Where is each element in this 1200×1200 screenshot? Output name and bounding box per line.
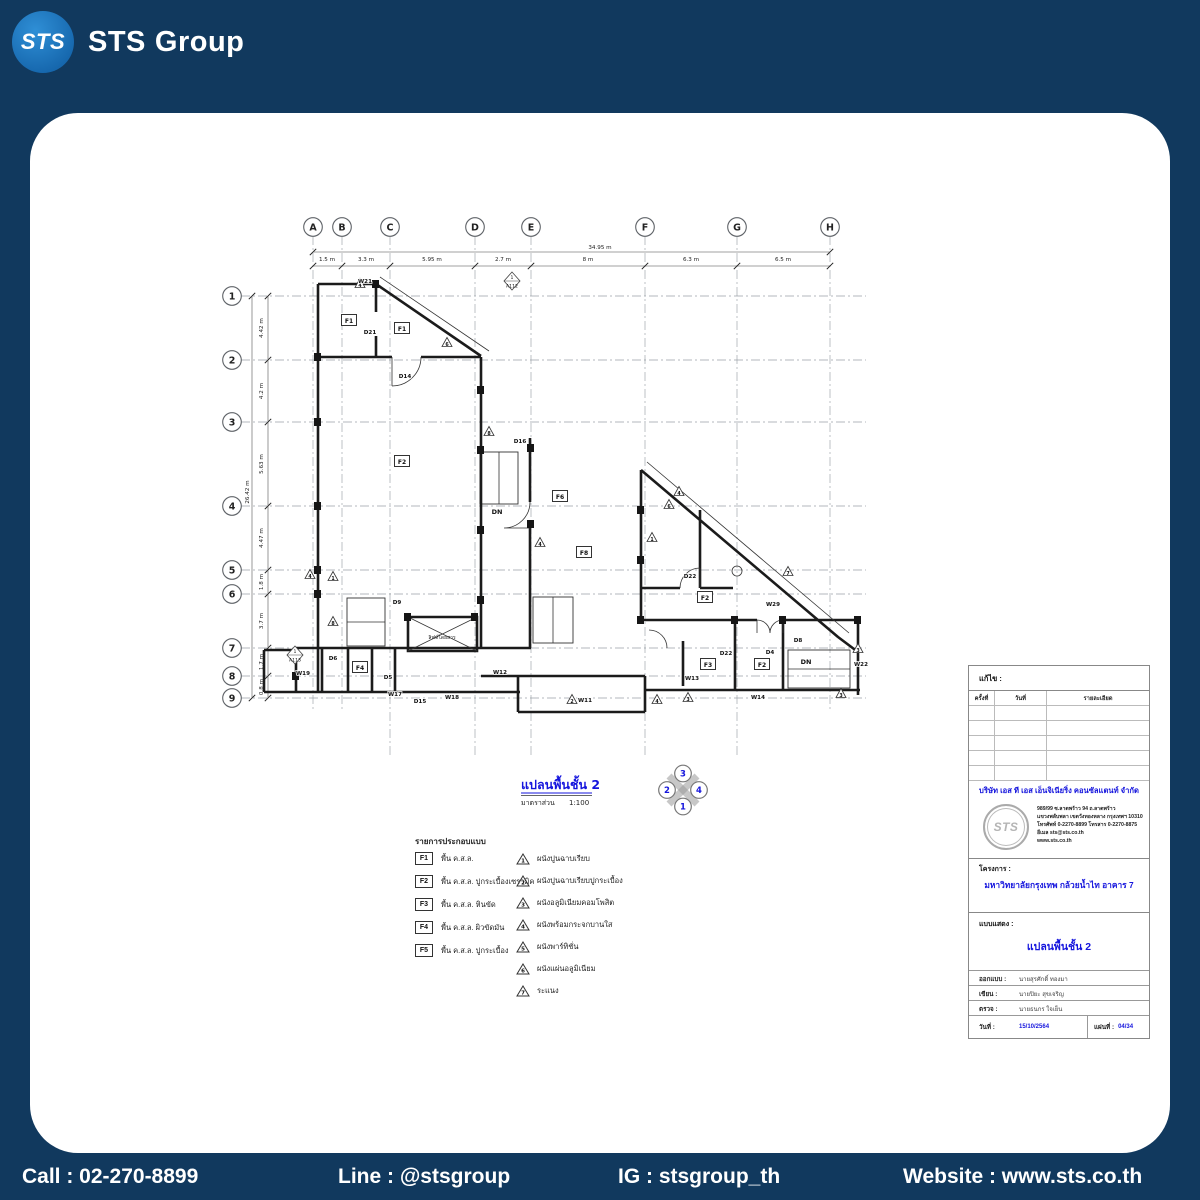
svg-text:2: 2 (521, 880, 525, 886)
plan-title: แปลนพื้นชั้น 2 (521, 775, 600, 792)
legend-wall-item: 6 ผนังแผ่นอลูมิเนียม (516, 962, 596, 975)
plan-scale-label: มาตราส่วน (521, 799, 555, 807)
grid-bubble-label: 4 (229, 501, 236, 512)
door-window-tag: W19 (296, 671, 310, 677)
wall-type-number: 7 (786, 571, 789, 577)
contact-footer: Call : 02-270-8899 Line : @stsgroup IG :… (0, 1153, 1200, 1200)
project-label: โครงการ : (979, 864, 1011, 875)
floor-code-badge: F2 (415, 875, 433, 888)
grid-bubble-label: F (642, 222, 649, 233)
north-top: 3 (680, 770, 686, 780)
svg-text:5: 5 (521, 946, 525, 952)
door-window-tag: DN (801, 658, 812, 666)
dim-label: 1.8 m (259, 574, 265, 590)
north-right: 4 (696, 786, 702, 796)
project-name: มหาวิทยาลัยกรุงเทพ กล้วยน้ำไท อาคาร 7 (973, 878, 1145, 892)
drawing-label: แบบแสดง : (979, 919, 1013, 930)
door-window-tag: D14 (399, 374, 412, 380)
wall-type-number: 2 (570, 699, 573, 705)
grid-bubble-label: G (733, 222, 741, 233)
triangle-marker-icon: 5 (516, 941, 530, 953)
grid-bubble-label: 9 (229, 693, 236, 704)
dim-label: 5.63 m (259, 454, 265, 474)
north-bottom: 1 (680, 803, 686, 813)
door-window-tag: D4 (766, 650, 775, 656)
floor-code-badge: F4 (415, 921, 433, 934)
floor-code-label: F2 (701, 595, 709, 602)
grid-bubble-label: H (826, 222, 834, 233)
legend-title: รายการประกอบแบบ (415, 835, 486, 848)
door-window-tag: W22 (854, 662, 868, 668)
grid-bubble-label: A (309, 222, 317, 233)
door-window-tag: D15 (414, 699, 427, 705)
floor-code-badge: F3 (415, 898, 433, 911)
legend-wall-item: 4 ผนังพร้อมกระจกบานใส (516, 918, 612, 931)
grid-bubble-label: 2 (229, 355, 236, 366)
company-name: บริษัท เอส ที เอส เอ็นจิเนียริ่ง คอนซัลแ… (973, 785, 1145, 797)
floor-code-label: F8 (580, 550, 588, 557)
sheet-cell: แผ่นที่ : 04/34 (1087, 1016, 1149, 1038)
revision-table: ครั้งที่ วันที่ รายละเอียด (969, 690, 1149, 781)
drawing-name: แปลนพื้นชั้น 2 (973, 938, 1145, 955)
plan-title-group: แปลนพื้นชั้น 2 มาตราส่วน 1:100 (521, 775, 600, 807)
door-window-tag: W21 (358, 279, 372, 285)
sts-stamp-icon: STS (983, 804, 1029, 850)
door-window-tag: D6 (329, 656, 338, 662)
legend-floor-item: F3 พื้น ค.ส.ล. หินขัด (415, 898, 496, 911)
door-window-tag: W17 (388, 692, 402, 698)
triangle-marker-icon: 6 (516, 963, 530, 975)
door-window-tag: D9 (393, 600, 402, 606)
door-window-tag: W29 (766, 602, 780, 608)
annotation-layer: 1A1121A1134614841647333842W21D21F1F1D14F… (287, 272, 868, 705)
dim-label: 3.3 m (358, 257, 374, 263)
wall-type-number: 1 (331, 576, 334, 582)
door-window-tag: W14 (751, 695, 765, 701)
dimension-lines (252, 252, 830, 698)
revision-label: แก้ไข : (979, 673, 1002, 685)
wall-type-number: 3 (856, 648, 859, 654)
dim-label: 1.5 m (319, 257, 335, 263)
sts-logo-text: STS (21, 29, 65, 55)
triangle-marker-icon: 1 (516, 853, 530, 865)
door-window-tag: W18 (445, 695, 459, 701)
grid-bubble-label: E (528, 222, 535, 233)
contact-website: Website : www.sts.co.th (903, 1165, 1142, 1189)
svg-text:1: 1 (521, 858, 525, 864)
title-block: แก้ไข : ครั้งที่ วันที่ รายละเอียด บริษั… (968, 665, 1150, 1039)
floor-code-label: F1 (345, 318, 353, 325)
door-window-tag: W11 (578, 698, 592, 704)
grid-bubble-label: 6 (229, 589, 236, 600)
sheet-value: 04/34 (1118, 1024, 1133, 1030)
contact-instagram: IG : stsgroup_th (618, 1165, 780, 1189)
room-label: ลิฟท์โดยสาร (428, 634, 456, 641)
legend-floor-item: F1 พื้น ค.ส.ล. (415, 852, 474, 865)
north-symbol: 3 2 4 1 (659, 765, 708, 815)
dim-label: 3.7 m (259, 613, 265, 629)
dim-label: 4.2 m (259, 383, 265, 399)
dim-label: 4.42 m (259, 318, 265, 338)
company-address: 989/99 ซ.ลาดพร้าว 94 ถ.ลาดพร้าว แขวงพลับ… (1037, 805, 1144, 845)
legend-wall-item: 1 ผนังปูนฉาบเรียบ (516, 852, 590, 865)
dim-total-label: 26.42 m (245, 480, 251, 503)
door-window-tag: D21 (364, 330, 377, 336)
sts-logo-icon: STS (12, 11, 74, 73)
drawing-card: ABCDEFGH1234567891.5 m3.3 m5.95 m2.7 m8 … (30, 113, 1170, 1153)
svg-text:7: 7 (521, 990, 525, 996)
door-window-tag: D16 (514, 439, 527, 445)
titleblock-row: ออกแบบ : นายสุรศักดิ์ ทองมา (969, 970, 1149, 986)
svg-text:6: 6 (521, 968, 525, 974)
grid-bubble-label: C (387, 222, 394, 233)
north-left: 2 (664, 786, 670, 796)
floor-code-label: F2 (398, 459, 406, 466)
door-window-tag: D5 (384, 675, 393, 681)
floor-code-label: F1 (398, 326, 406, 333)
floor-code-label: F2 (758, 662, 766, 669)
legend-wall-item: 5 ผนังพาร์ทิชั่น (516, 940, 579, 953)
floor-code-label: F4 (356, 665, 364, 672)
door-window-tag: W12 (493, 670, 507, 676)
triangle-marker-icon: 7 (516, 985, 530, 997)
dim-label: 6.5 m (775, 257, 791, 263)
wall-type-number: 1 (650, 537, 653, 543)
section-marker-sheet: A112 (506, 284, 518, 290)
grid-bubble-label: 1 (229, 291, 236, 302)
brand-name: STS Group (88, 26, 244, 59)
door-window-tag: W13 (685, 676, 699, 682)
dim-label: 4.47 m (259, 528, 265, 548)
grid-bubble-label: B (338, 222, 345, 233)
titleblock-row: เขียน : นายปิยะ สุขเจริญ (969, 985, 1149, 1001)
legend-wall-item: 2 ผนังปูนฉาบเรียบปูกระเบื้อง (516, 874, 623, 887)
titleblock-date-row: วันที่ : 15/10/2564 แผ่นที่ : 04/34 (969, 1015, 1149, 1038)
wall-type-number: 3 (839, 693, 842, 699)
dim-label: 8 m (583, 257, 594, 263)
floor-code-label: F6 (556, 494, 564, 501)
dim-label: 5.95 m (422, 257, 442, 263)
dim-total-label: 34.95 m (588, 245, 611, 251)
legend-floor-item: F5 พื้น ค.ส.ล. ปูกระเบื้อง (415, 944, 509, 957)
svg-text:3: 3 (521, 902, 525, 908)
grid-bubble-label: 5 (229, 565, 236, 576)
grid-bubble-label: 8 (229, 671, 236, 682)
grid-bubble-label: 3 (229, 417, 236, 428)
contact-line: Line : @stsgroup (338, 1165, 510, 1189)
triangle-marker-icon: 4 (516, 919, 530, 931)
door-window-tag: D8 (794, 638, 803, 644)
door-window-tag: D22 (684, 574, 697, 580)
section-marker-number: 1 (511, 275, 514, 281)
section-marker-sheet: A113 (289, 658, 301, 664)
dim-label: 2.7 m (495, 257, 511, 263)
floor-code-badge: F1 (415, 852, 433, 865)
floor-code-badge: F5 (415, 944, 433, 957)
legend-floor-item: F4 พื้น ค.ส.ล. ผิวขัดมัน (415, 921, 504, 934)
triangle-marker-icon: 3 (516, 897, 530, 909)
svg-text:4: 4 (521, 924, 525, 930)
plan-scale-value: 1:100 (569, 799, 589, 807)
legend-wall-item: 7 ระแนง (516, 984, 559, 997)
contact-call: Call : 02-270-8899 (22, 1165, 198, 1189)
date-value: 15/10/2564 (1019, 1024, 1049, 1030)
brand-header: STS STS Group (12, 10, 244, 74)
grid-bubble-label: D (471, 222, 479, 233)
door-window-tag: DN (492, 508, 503, 516)
door-window-tag: D22 (720, 651, 733, 657)
legend-wall-item: 3 ผนังอลูมิเนียมคอมโพสิต (516, 896, 614, 909)
titleblock-row: ตรวจ : นายธนกร ใจเย็น (969, 1000, 1149, 1016)
grid-bubble-label: 7 (229, 643, 236, 654)
wall-type-number: 3 (686, 697, 689, 703)
triangle-marker-icon: 2 (516, 875, 530, 887)
dim-label: 6.3 m (683, 257, 699, 263)
section-marker-number: 1 (294, 649, 297, 655)
floor-code-label: F3 (704, 662, 712, 669)
